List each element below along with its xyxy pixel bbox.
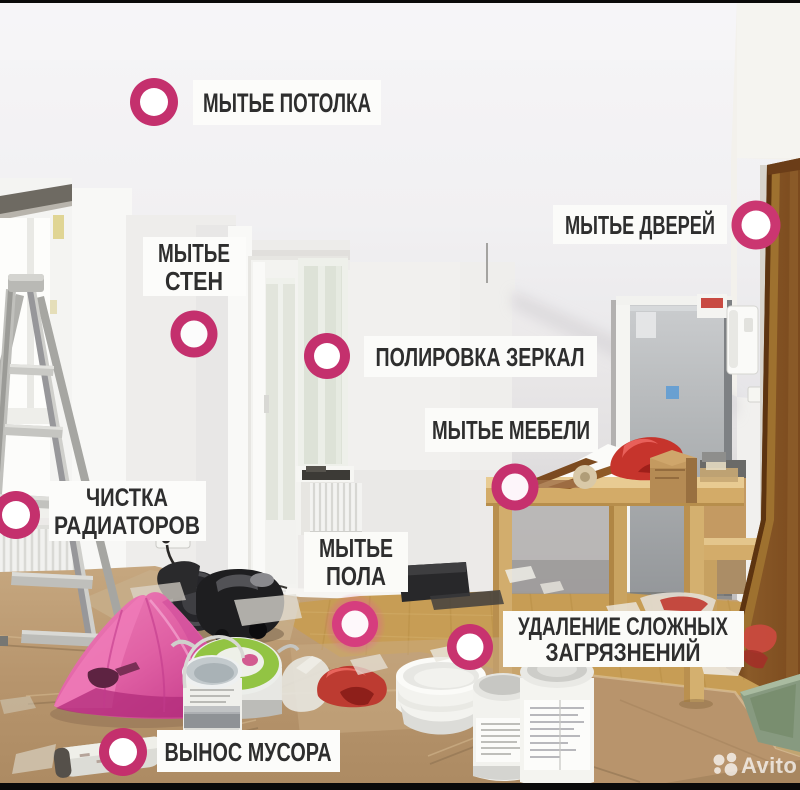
svg-text:МЫТЬЕ: МЫТЬЕ bbox=[319, 533, 393, 563]
svg-text:ЗАГРЯЗНЕНИЙ: ЗАГРЯЗНЕНИЙ bbox=[546, 637, 701, 667]
svg-text:Avito: Avito bbox=[741, 753, 797, 778]
svg-text:ПОЛИРОВКА ЗЕРКАЛ: ПОЛИРОВКА ЗЕРКАЛ bbox=[376, 342, 585, 372]
svg-text:РАДИАТОРОВ: РАДИАТОРОВ bbox=[54, 512, 200, 540]
svg-text:МЫТЬЕ МЕБЕЛИ: МЫТЬЕ МЕБЕЛИ bbox=[432, 415, 590, 445]
svg-text:МЫТЬЕ ДВЕРЕЙ: МЫТЬЕ ДВЕРЕЙ bbox=[565, 210, 715, 240]
svg-text:ПОЛА: ПОЛА bbox=[326, 561, 386, 591]
svg-text:МЫТЬЕ ПОТОЛКА: МЫТЬЕ ПОТОЛКА bbox=[203, 88, 371, 118]
svg-text:ЧИСТКА: ЧИСТКА bbox=[86, 484, 168, 512]
svg-text:МЫТЬЕ: МЫТЬЕ bbox=[158, 238, 230, 268]
svg-text:ВЫНОС МУСОРА: ВЫНОС МУСОРА bbox=[165, 737, 332, 767]
svg-text:СТЕН: СТЕН bbox=[165, 266, 223, 296]
svg-text:УДАЛЕНИЕ СЛОЖНЫХ: УДАЛЕНИЕ СЛОЖНЫХ bbox=[518, 613, 728, 641]
